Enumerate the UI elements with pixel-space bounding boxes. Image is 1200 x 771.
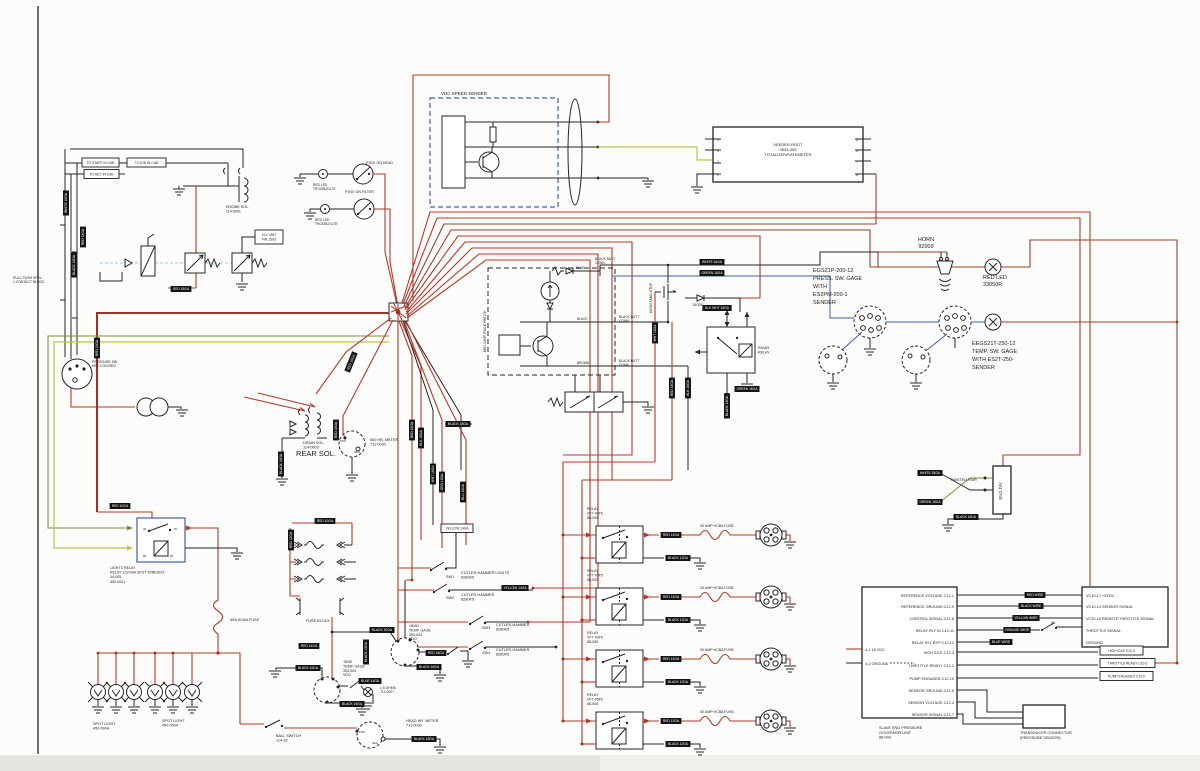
- wire-tag: RED 12GA: [288, 530, 294, 551]
- wire-tag: RED 10GA: [315, 518, 336, 524]
- yellow-14ga-label: YELLOW 14GA: [441, 524, 473, 533]
- svg-text:RED 18GA: RED 18GA: [81, 228, 85, 245]
- ball-switch-label: BALL SWITCH114-18: [276, 734, 301, 743]
- svg-text:BLACK 12GA: BLACK 12GA: [668, 680, 689, 684]
- wire-tag: BLK 18GA: [685, 378, 691, 399]
- ground-icon: [910, 383, 922, 389]
- relay-pin-label: 87: [174, 527, 178, 531]
- engine-sol-label: ENGINE SOL.114-0001: [226, 205, 249, 213]
- relay-feed-columns: [563, 462, 582, 744]
- wire-tag: WHT 18GA: [430, 464, 436, 485]
- wire-tag: RED WIRE: [1025, 592, 1046, 598]
- ground-icon: [827, 383, 839, 389]
- svg-text:TO ACC IN CAB: TO ACC IN CAB: [89, 172, 114, 176]
- switch-5v-label: 5V: [1051, 621, 1056, 625]
- fuse-40a-icon: [214, 596, 223, 638]
- contact-block-label: PULL-PUSH SPDL1 CONTACT BLOCK: [13, 276, 45, 284]
- spot-light-icon: [88, 682, 108, 702]
- hr-meter-500: [339, 431, 365, 474]
- center-solenoid-valve: [548, 392, 648, 412]
- gov-pin-label: RELAY RLY BYP C12-12: [912, 641, 954, 645]
- svg-text:BLACK 12GA: BLACK 12GA: [668, 618, 689, 622]
- lights-relay-label: LIGHTS RELAYRELAY 12V/30A SPST W/RESIST.…: [110, 566, 166, 584]
- wire-tag: BLACK 20GA: [370, 627, 395, 633]
- troublelite-label: RED LEDTROUBLELITE: [315, 218, 338, 226]
- ground-icon: [176, 410, 188, 416]
- cutler-hammer-switches: [430, 533, 558, 650]
- vdc-speed-sender-label: VDC SPEED SENDER: [441, 91, 488, 96]
- diode-label: DIODE: [693, 303, 703, 307]
- pneumatic-valves: [100, 186, 267, 288]
- ground-icon: [942, 525, 954, 531]
- wire-tag: RED 18GA: [80, 227, 86, 248]
- wire-tag: GREEN 18GA: [918, 499, 943, 505]
- ground-icon: [784, 604, 796, 610]
- wire-tag: BLACK 16GA: [340, 701, 365, 707]
- ground-icon: [110, 707, 122, 713]
- gov-pin-label: SENSOR GROUND C12-5: [909, 689, 954, 693]
- spot-light-icon: [106, 682, 126, 702]
- wire-tag: WHT 18GA: [652, 323, 658, 344]
- sw3-label: SW3: [482, 626, 490, 630]
- svg-text:RED 18GA: RED 18GA: [334, 421, 338, 438]
- ground-icon: [784, 542, 796, 548]
- troublelite-label: RED LEDTROUBLELITE: [313, 183, 336, 191]
- wire-tag: BLACK 18GA: [446, 421, 471, 427]
- svg-text:BLACK 18GA: BLACK 18GA: [414, 737, 435, 741]
- ground-icon: [694, 563, 706, 569]
- svg-text:TO START IN CAB: TO START IN CAB: [87, 161, 116, 165]
- svg-text:RED 14GA: RED 14GA: [301, 644, 318, 648]
- wire-tag: BLACK 18GA: [412, 736, 437, 742]
- svg-text:BLU 18GA: BLU 18GA: [461, 483, 465, 500]
- twisted-pair-label: TWISTED PAIR: [950, 478, 977, 482]
- fuse-30a-label: 30 AMP HCBA FUSE: [700, 586, 734, 590]
- veeder-pin-label: 4: [717, 138, 719, 142]
- ground-icon: [276, 479, 288, 485]
- sw2-label: SW2: [446, 596, 454, 600]
- hr-meter-500-label: 500 HR. METER711-0030: [370, 438, 399, 447]
- svg-text:BLK 18GA: BLK 18GA: [686, 379, 690, 395]
- wire-tag: RED 10GA: [344, 351, 357, 373]
- pressure-gage-connector: [830, 276, 939, 350]
- svg-text:RED 12GA: RED 12GA: [663, 533, 680, 537]
- wire-tag: RED 14GA: [299, 643, 320, 649]
- meter-neg-label: NEG: [354, 450, 360, 454]
- ground-icon: [269, 671, 281, 677]
- gov-pin-label: REFERENCE GROUND C12-9: [901, 605, 954, 609]
- wire-tag: WHITE 16GA: [700, 259, 725, 265]
- wire-tag: YELLOW WIRE: [1012, 615, 1039, 621]
- svg-text:GREEN 16GA: GREEN 16GA: [736, 387, 758, 391]
- horn-label: HORN92909: [918, 237, 934, 250]
- eng-div-label: ENG DIV: [998, 482, 1003, 499]
- center-relay-label: RA/ANRELAY: [758, 346, 770, 354]
- wire-tag: BLACK 18GA: [363, 640, 369, 665]
- svg-text:WHITE 18GA: WHITE 18GA: [64, 192, 68, 213]
- red-led-label: RED LED33050R: [983, 275, 1007, 288]
- wire-tag: BLACK 12GA: [666, 741, 691, 747]
- relay-label: RELAYVF7 45F588-005: [587, 631, 603, 644]
- svg-text:PIN 15/16: PIN 15/16: [262, 238, 277, 242]
- transducer-label: TRANSDUCER CONNECTOR(PRESSURE SENSOR): [1020, 731, 1072, 740]
- meter-neg-label: NEG: [372, 741, 378, 745]
- veeder-pin-label: 7: [856, 160, 858, 164]
- svg-text:BLACK 16GA: BLACK 16GA: [419, 665, 440, 669]
- veeder-pin-label: 1: [717, 173, 719, 177]
- ground-icon: [231, 553, 243, 559]
- spot-light-icon: [124, 682, 144, 702]
- temp-gage-connector: [927, 306, 1178, 350]
- svg-text:YELLOW WIRE: YELLOW WIRE: [1014, 616, 1038, 620]
- svg-text:BLACK 18GA: BLACK 18GA: [72, 254, 76, 275]
- svg-text:GREEN 16GA: GREEN 16GA: [701, 271, 723, 275]
- to-ign-label: TO IGN IN CAB: [127, 158, 166, 167]
- svg-text:WHITE 16GA: WHITE 16GA: [702, 260, 723, 264]
- gov-pin-label: HIGH IDLE C12-3: [924, 651, 954, 655]
- svg-text:BLACK 16GA: BLACK 16GA: [279, 453, 283, 474]
- svg-text:BLACK 18GA: BLACK 18GA: [956, 515, 977, 519]
- ground-icon: [294, 178, 306, 184]
- wire-tag: BLACK 16GA: [278, 452, 284, 477]
- veeder-pin-label: 3: [717, 149, 719, 153]
- ground-icon: [642, 407, 654, 413]
- vc10-pin-label: VC10-17 +5VDC: [1086, 594, 1115, 598]
- gov-pin-label: PUMP ENGAGED C12-10: [910, 677, 954, 681]
- wire-tag: BLUE WIRE: [990, 639, 1013, 645]
- kickstand-label: KICKSTAND STOP: [649, 282, 653, 313]
- meter-pos-label: POS: [340, 439, 346, 443]
- wire-tag: RED 18GA: [333, 420, 339, 441]
- wire-tag: RED 10GA: [94, 338, 100, 359]
- pressure-sw-label: PRESSURE SWKEY # ON REG: [92, 360, 118, 368]
- ground-icon: [149, 707, 161, 713]
- wire-tag: BLU 18GA: [460, 482, 466, 503]
- cutler-switch-label: CUTLER-HAMMER8280K5: [496, 623, 530, 632]
- spot-light-icon: [163, 682, 183, 702]
- gov-pin-label: REFERENCE VOLTAGE C12-1: [901, 594, 954, 598]
- wire-tag: BLACK 12GA: [666, 679, 691, 685]
- ground-ref-label: 4-2 GROUND: [865, 662, 889, 666]
- wiring-diagram: VDC SPEED SENDERVEEDER-ROOT0633-305TOTAL…: [0, 0, 1200, 771]
- head-hr-meter: [356, 722, 441, 748]
- svg-text:BLK 18GA: BLK 18GA: [419, 429, 423, 445]
- scan-band: [0, 755, 600, 771]
- wire-tag: ORANGE WIRE: [1003, 627, 1030, 633]
- ground-icon: [173, 189, 185, 195]
- meter-pos-label: POS: [359, 730, 365, 734]
- resistor-label: 1.5 OHMS711-0007: [380, 686, 397, 694]
- svg-text:RED 12GA: RED 12GA: [663, 657, 680, 661]
- svg-text:PUMP ENGAGED C10-5: PUMP ENGAGED C10-5: [1108, 674, 1145, 678]
- vc10-pin-label: GROUND: [1086, 641, 1103, 645]
- cutler-switch-label: CUTLER-HAMMER LIGHTS8280K5: [461, 571, 510, 580]
- svg-text:GREEN 18GA: GREEN 18GA: [919, 500, 941, 504]
- dual-coil-component: [137, 398, 181, 416]
- ground-icon: [691, 187, 703, 193]
- svg-text:YELLOW 14GA: YELLOW 14GA: [445, 527, 469, 531]
- svg-text:RED 10GA: RED 10GA: [317, 519, 334, 523]
- wire-tag: BLACK 16GA: [296, 665, 321, 671]
- center-relay: [695, 310, 755, 398]
- svg-text:RED WIRE: RED WIRE: [1027, 593, 1044, 597]
- temp-gage-label: EEGS21T-250-12TEMP. SW. GAGEWITH ES2T-25…: [972, 341, 1017, 371]
- relay-pin-label: 30: [143, 527, 147, 531]
- wire-tag: BLACK 16GA: [417, 664, 442, 670]
- sw1-label: SW1: [446, 575, 454, 579]
- throttle-ready-c10-label: THROTTLE READY C10-2: [1100, 659, 1155, 668]
- vlv-unit-label: VLV UNITPIN 15/16: [255, 230, 283, 244]
- wire-tag: WHITE 18GA: [63, 191, 69, 216]
- wire-tag: BLACK WIRE: [1019, 603, 1044, 609]
- veeder-pin-label: 8: [856, 173, 858, 177]
- wire-tag: GRN 18GA: [439, 472, 445, 493]
- tank-temp-gage-label: TANKTEMP. GAGE300-004VDO: [343, 660, 366, 677]
- veeder-pin-label: 2: [717, 160, 719, 164]
- gov-pin-label: CONTROL SIGNAL C12-8: [909, 617, 954, 621]
- fuse-30a-label: 30 AMP HCBA FUSE: [700, 524, 734, 528]
- svg-text:RED 10GA: RED 10GA: [95, 339, 99, 356]
- high-idle-c10-label: HIGH IDLE C10-3: [1100, 646, 1143, 655]
- schematic-page: VDC SPEED SENDERVEEDER-ROOT0633-305TOTAL…: [0, 0, 1200, 771]
- svg-text:HIGH IDLE C10-3: HIGH IDLE C10-3: [1108, 649, 1135, 653]
- gov-pin-label: SENSOR VOLTAGE C12-4: [908, 701, 954, 705]
- fuse-block-label: FUSE BLOCK: [306, 619, 331, 623]
- relay-pin-label: 85: [143, 554, 147, 558]
- spot-light-icon: [145, 682, 165, 702]
- spot-light-icon: [182, 682, 202, 702]
- sw4-label: SW4: [482, 651, 490, 655]
- svg-text:BLK WHT 16GA: BLK WHT 16GA: [705, 306, 730, 310]
- wire-tag: BLACK 18GA: [71, 253, 77, 278]
- ground-icon: [784, 728, 796, 734]
- ground-icon: [236, 284, 248, 290]
- ground-icon: [864, 349, 876, 355]
- black-wire-note: BLACK: [577, 317, 588, 321]
- svg-text:WHITE 18GA: WHITE 18GA: [920, 471, 941, 475]
- wire-tag: RED 12GA: [661, 594, 682, 600]
- head-hr-meter-label: HEAD HR. METER711-0030: [406, 719, 439, 728]
- wire-tag: RED 12GA: [661, 656, 682, 662]
- spot-light-label-2: SPOT LIGHT.450-0004: [162, 719, 185, 728]
- ground-icon: [186, 707, 198, 713]
- blue-wire-note: BLUE: [576, 266, 584, 270]
- rear-sol-label: REAR SOL.: [296, 449, 336, 458]
- wire-tag: BLUE 14GA: [359, 678, 382, 684]
- ground-icon: [346, 475, 358, 481]
- svg-text:RED 18GA: RED 18GA: [670, 379, 674, 396]
- svg-text:BLACK 12GA: BLACK 12GA: [668, 556, 689, 560]
- fuse-block: [290, 523, 356, 615]
- wire-tag: BLK 18GA: [418, 428, 424, 449]
- wire-tag: GREEN 16GA: [700, 270, 725, 276]
- svg-text:RED 18GA: RED 18GA: [173, 287, 190, 291]
- svg-text:VLV UNIT: VLV UNIT: [262, 233, 277, 237]
- svg-text:TO IGN IN CAB: TO IGN IN CAB: [135, 161, 159, 165]
- ground-icon: [694, 625, 706, 631]
- ground-icon: [462, 661, 474, 667]
- ground-icon: [642, 181, 654, 187]
- veeder-pin-label: 5: [856, 138, 858, 142]
- svg-text:YELLOW 14GA: YELLOW 14GA: [503, 586, 527, 590]
- svg-text:RED 18GA: RED 18GA: [410, 421, 414, 438]
- scan-band: [600, 755, 1200, 771]
- wire-tag: YELLOW 14GA: [501, 585, 528, 591]
- svg-text:RED 12GA: RED 12GA: [663, 595, 680, 599]
- spot-light-grounds: [98, 700, 192, 706]
- svg-text:WHT 18GA: WHT 18GA: [653, 324, 657, 342]
- ground-icon: [434, 675, 446, 681]
- press-gage-label: EGS21P-200-12PRESS. SW. GAGEWITHES2PM-20…: [813, 268, 863, 306]
- gov-pin-label: SENSOR SIGNAL C12-7: [912, 713, 954, 717]
- psw-filter-label: P.SW. ON FILTER: [345, 190, 374, 194]
- to-start-label: TO START IN CAB: [82, 158, 119, 167]
- wire-tag: RED 18GA: [171, 286, 192, 292]
- relay-label: RELAYVF7 45F588-005: [587, 569, 603, 582]
- svg-text:BLACK 20GA: BLACK 20GA: [372, 628, 393, 632]
- svg-text:BLACK 16GA: BLACK 16GA: [342, 702, 363, 706]
- power-distribution-hub: [389, 303, 408, 321]
- ground-icon: [356, 709, 368, 715]
- svg-text:BLACK 18GA: BLACK 18GA: [364, 641, 368, 662]
- svg-text:THROTTLE READY C10-2: THROTTLE READY C10-2: [1108, 661, 1148, 665]
- wire-tag: GREEN 16GA: [735, 386, 760, 392]
- veeder-pin-label: 6: [856, 149, 858, 153]
- svg-text:BLACK 16GA: BLACK 16GA: [298, 666, 319, 670]
- vc10-pin-label: VC10-14 SENSOR SIGNAL: [1086, 605, 1133, 609]
- vdc-supply-label: 4-1 18 VDC: [865, 648, 885, 652]
- spot-light-label-1: SPOT LIGHT.450-0004: [93, 722, 116, 731]
- svg-text:BLUE 14GA: BLUE 14GA: [361, 679, 380, 683]
- cutler-switch-label: CUTLER-HAMMER8280K5: [496, 648, 530, 657]
- spot-light-bus: [97, 651, 240, 684]
- svg-text:RED 12GA: RED 12GA: [289, 531, 293, 548]
- svg-text:BLUE WIRE: BLUE WIRE: [992, 640, 1011, 644]
- relay-pin-label: 86: [170, 554, 174, 558]
- fuse-30a-label: 30 AMP HCBA FUSE: [700, 648, 734, 652]
- wire-tag: RED 12GA: [661, 532, 682, 538]
- wire-tag: RED 12GA: [661, 718, 682, 724]
- relay-label: RELAYVF7 45F588-005: [587, 507, 603, 520]
- wire-tag: RED 10GA: [110, 503, 131, 509]
- wire-tag: RED 18GA: [409, 420, 415, 441]
- ground-icon: [128, 707, 140, 713]
- svg-text:BLACK WIRE: BLACK WIRE: [1021, 604, 1042, 608]
- vc10-pin-label: THROTTLE SIGNAL: [1086, 629, 1121, 633]
- wire-tag: BLACK 18GA: [954, 514, 979, 520]
- brown-wire-note: BROWN: [577, 361, 590, 365]
- ground-icon: [784, 666, 796, 672]
- pump-engaged-c10-label: PUMP ENGAGED C10-5: [1100, 672, 1153, 681]
- wire-tag: BLACK 12GA: [666, 555, 691, 561]
- ground-icon: [167, 707, 179, 713]
- sender-connector-b: [902, 346, 930, 382]
- fuse-40a-label: 40A HCBA FUSE: [230, 618, 260, 622]
- fuse-30a-label: 30 AMP HCBA FUSE: [700, 710, 734, 714]
- relay-label: RELAYVF7 45F588-005: [587, 693, 603, 706]
- svg-text:BLACK 12GA: BLACK 12GA: [668, 742, 689, 746]
- ground-icon: [92, 707, 104, 713]
- psw-head-label: P.SW. ON HEAD: [366, 161, 393, 165]
- tank-temp-gage: [276, 617, 373, 708]
- svg-text:ORANGE WIRE: ORANGE WIRE: [1005, 628, 1030, 632]
- vc10-pin-label: VC10-18 REMOTE THROTTLE SIGNAL: [1086, 617, 1154, 621]
- governor-unit-label: SLAVE ENG PRESSUREGOVERNOR UNIT88-044: [879, 726, 923, 740]
- ground-icon: [434, 747, 446, 753]
- wire-tag: RED 18GA: [669, 378, 675, 399]
- wire-tag: BLACK 12GA: [724, 394, 730, 419]
- wire-tag: BLK WHT 16GA: [702, 305, 731, 311]
- pack-patch-label: MID-SHIP PACK PATCH: [483, 310, 487, 352]
- svg-text:GRN 18GA: GRN 18GA: [440, 473, 444, 490]
- svg-text:BLACK 12GA: BLACK 12GA: [725, 395, 729, 416]
- gov-pin-label: THROTTLE READY C12-2: [908, 664, 954, 668]
- svg-text:BLACK 18GA: BLACK 18GA: [448, 422, 469, 426]
- sender-connector-a: [819, 346, 847, 382]
- svg-text:RED 18GA: RED 18GA: [428, 651, 445, 655]
- svg-text:RED 10GA: RED 10GA: [112, 504, 129, 508]
- ground-icon: [694, 749, 706, 755]
- drain-solenoid: [244, 393, 327, 478]
- gov-pin-label: RELAY RLY IN C12-11: [916, 629, 954, 633]
- head-temp-gage-label: HEADTEMP. GAGE300-004VDO: [409, 624, 432, 641]
- wire-tag: BLACK 12GA: [666, 617, 691, 623]
- ground-icon: [694, 687, 706, 693]
- to-acc-label: TO ACC IN CAB: [84, 170, 119, 179]
- cutler-switch-label: CUTLER-HAMMER8280K5: [461, 593, 495, 602]
- wire-tag: RED 18GA: [426, 650, 447, 656]
- svg-text:WHT 18GA: WHT 18GA: [431, 465, 435, 483]
- svg-text:RED 12GA: RED 12GA: [663, 719, 680, 723]
- wire-tag: WHITE 18GA: [918, 470, 943, 476]
